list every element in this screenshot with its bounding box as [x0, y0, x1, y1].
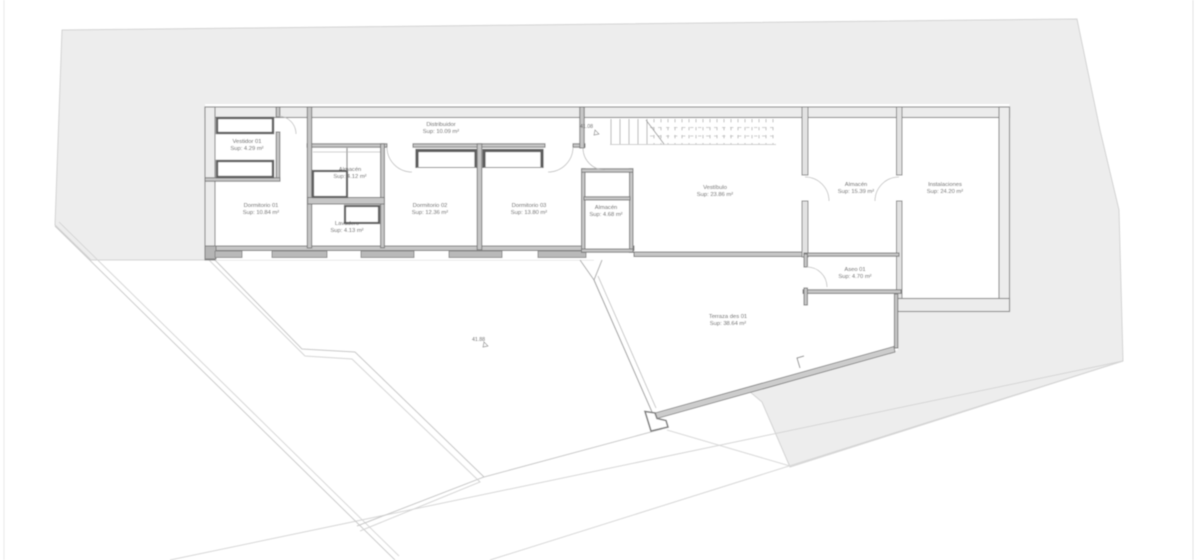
- svg-text:Dormitorio 01: Dormitorio 01: [244, 203, 279, 209]
- svg-text:Sup: 4.13 m²: Sup: 4.13 m²: [330, 228, 363, 234]
- svg-text:Distribuidor: Distribuidor: [426, 122, 455, 128]
- svg-text:Dormitorio 02: Dormitorio 02: [413, 203, 448, 209]
- svg-text:Sup: 4.68 m²: Sup: 4.68 m²: [589, 212, 622, 218]
- svg-text:Dormitorio 03: Dormitorio 03: [512, 203, 547, 209]
- svg-text:Sup: 4.12 m²: Sup: 4.12 m²: [333, 174, 366, 180]
- svg-text:Terraza des 01: Terraza des 01: [709, 314, 747, 320]
- svg-text:Vestidor 01: Vestidor 01: [232, 139, 261, 145]
- svg-text:Sup: 4.29 m²: Sup: 4.29 m²: [230, 146, 263, 152]
- svg-text:Sup: 24.20 m²: Sup: 24.20 m²: [927, 189, 963, 195]
- svg-text:Almacén: Almacén: [595, 205, 618, 211]
- svg-text:Aseo 01: Aseo 01: [844, 267, 865, 273]
- svg-text:Sup: 4.70 m²: Sup: 4.70 m²: [838, 274, 871, 280]
- svg-text:Almacén: Almacén: [845, 182, 868, 188]
- svg-text:41.88: 41.88: [472, 337, 485, 343]
- svg-text:Sup: 13.80 m²: Sup: 13.80 m²: [511, 210, 547, 216]
- svg-text:Sup: 23.86 m²: Sup: 23.86 m²: [697, 192, 733, 198]
- svg-text:Sup: 15.39 m²: Sup: 15.39 m²: [838, 189, 874, 195]
- svg-text:Instalaciones: Instalaciones: [928, 182, 962, 188]
- svg-text:Lavadero: Lavadero: [335, 221, 359, 227]
- svg-text:Almacén: Almacén: [339, 167, 362, 173]
- svg-text:Sup: 12.36 m²: Sup: 12.36 m²: [412, 210, 448, 216]
- svg-text:Sup: 38.64 m²: Sup: 38.64 m²: [710, 321, 746, 327]
- svg-text:Sup: 10.09 m²: Sup: 10.09 m²: [423, 129, 459, 135]
- svg-text:Vestíbulo: Vestíbulo: [703, 185, 727, 191]
- svg-text:41.08: 41.08: [580, 124, 593, 130]
- svg-text:Sup: 10.84 m²: Sup: 10.84 m²: [243, 210, 279, 216]
